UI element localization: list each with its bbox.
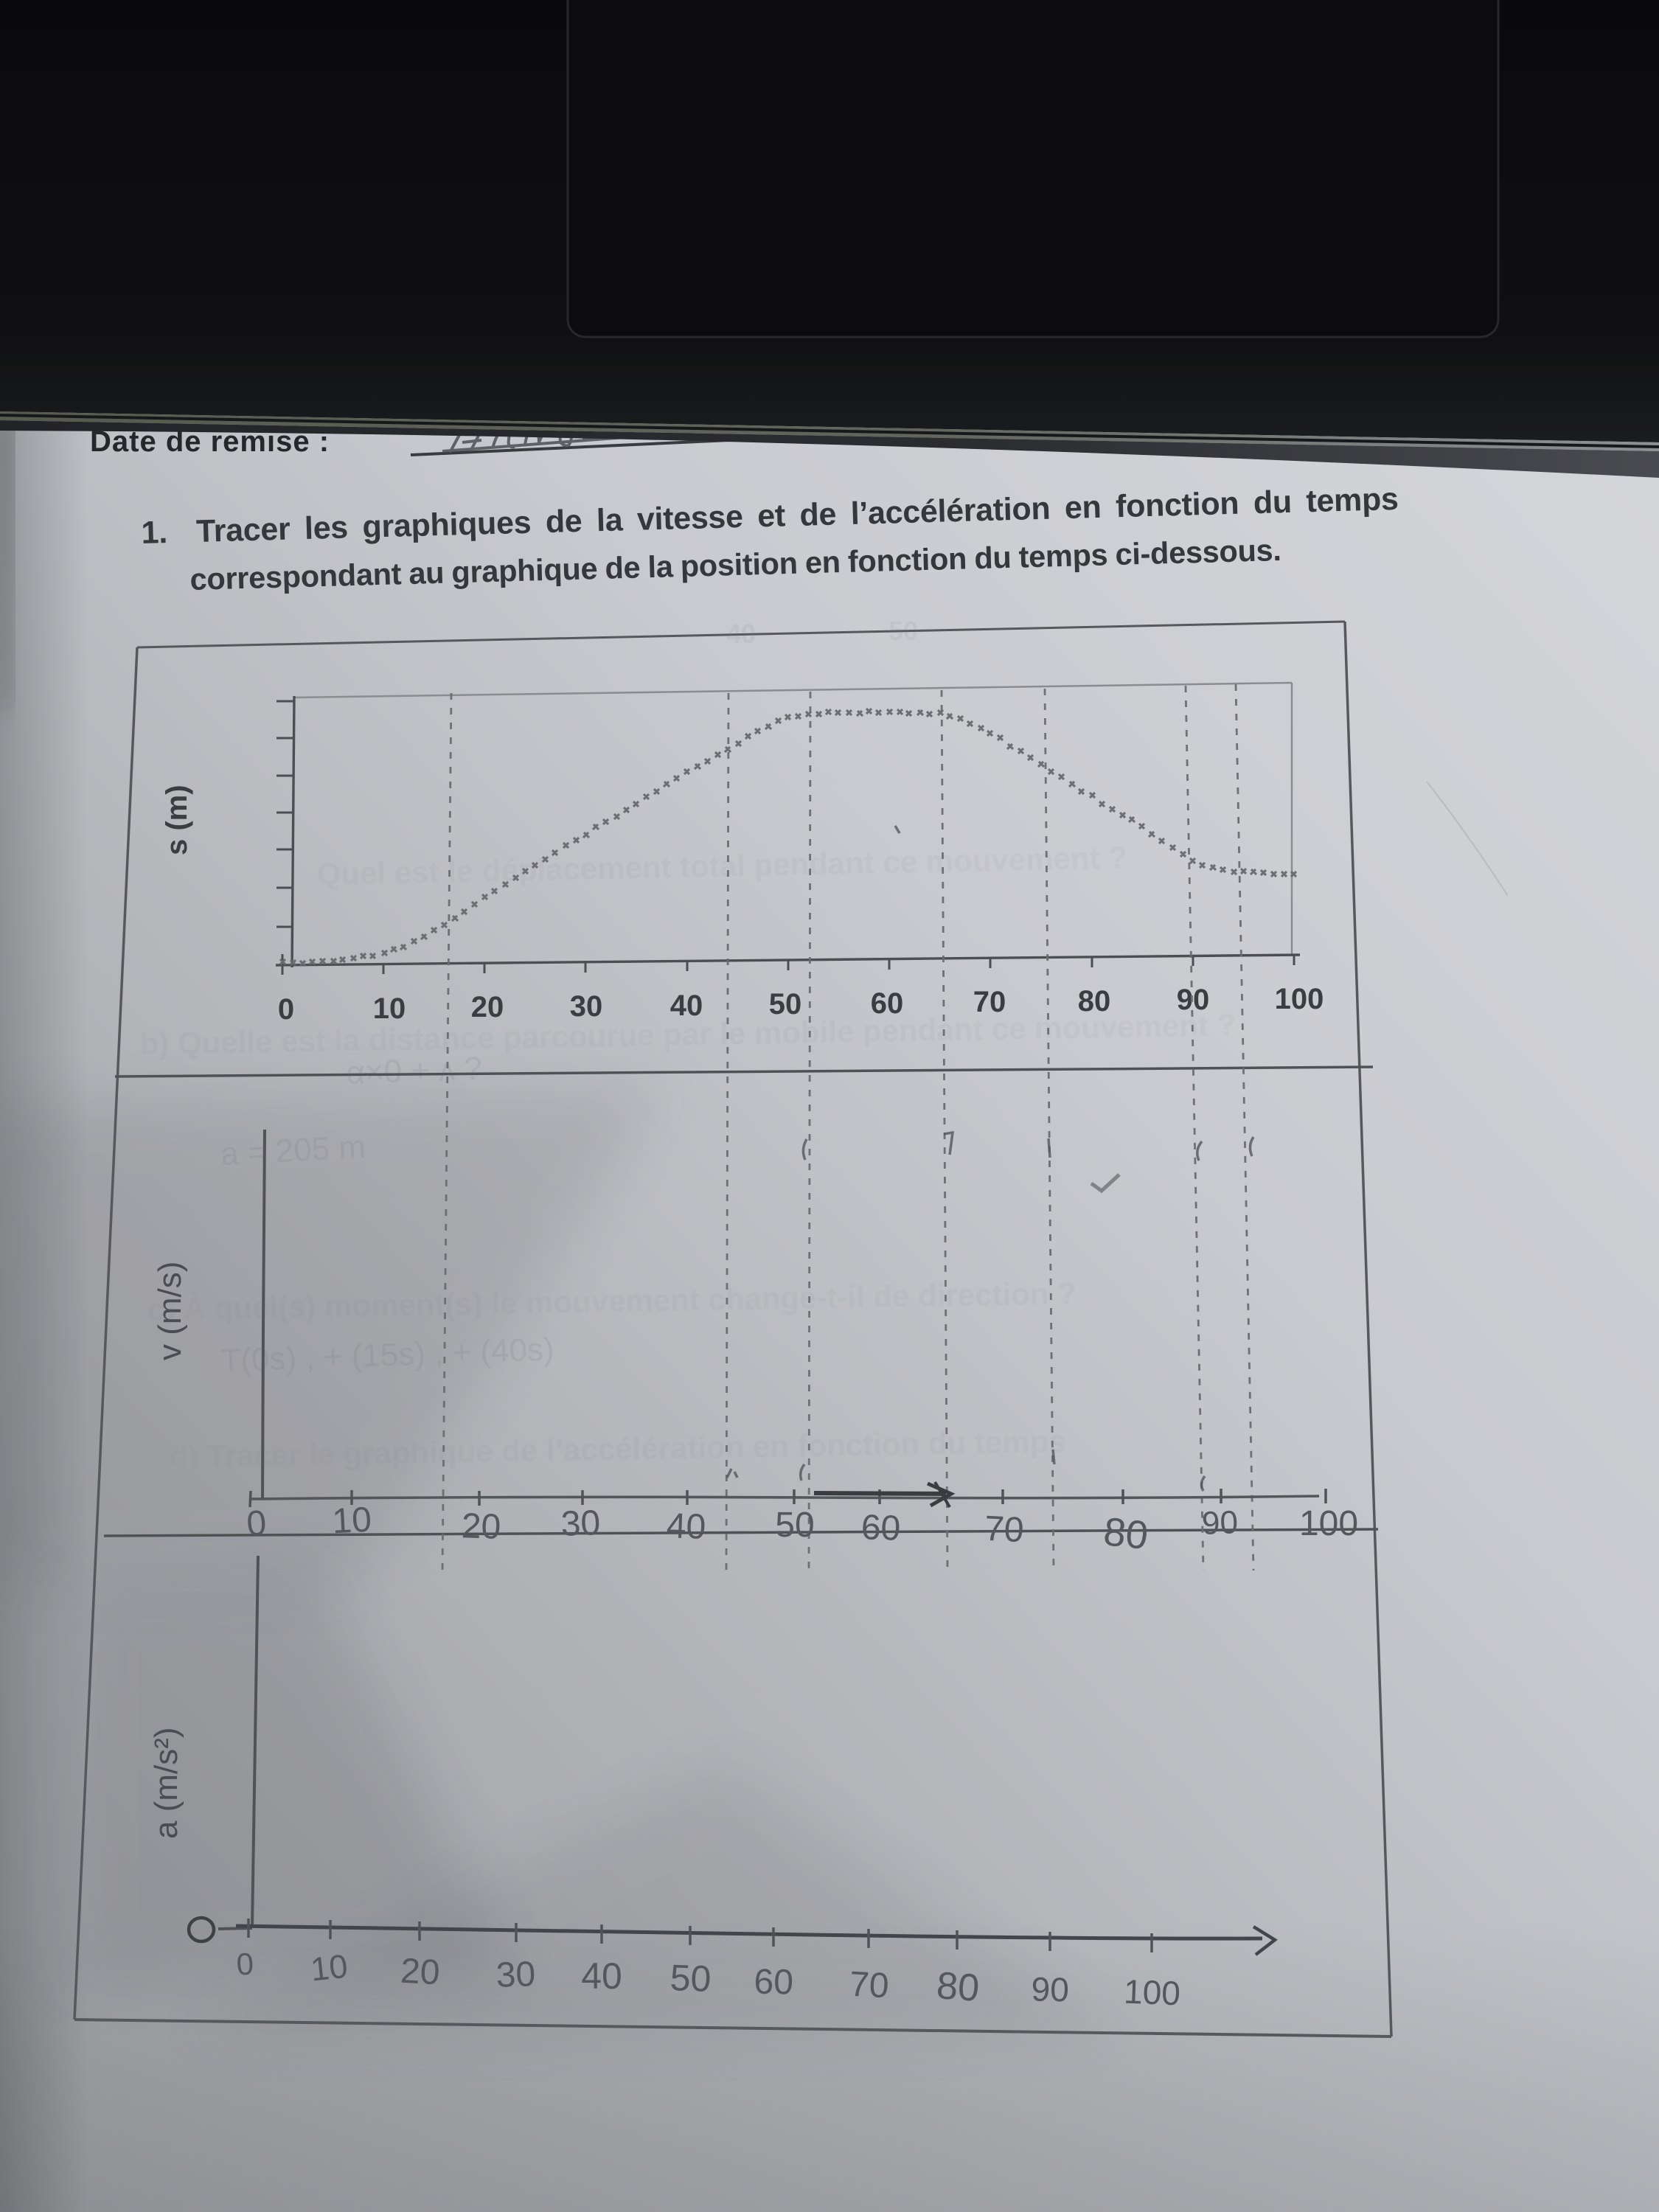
svg-text:50: 50 xyxy=(775,1506,814,1545)
svg-text:80: 80 xyxy=(1102,1509,1150,1558)
svg-text:60: 60 xyxy=(754,1963,793,2003)
svg-text:60: 60 xyxy=(860,1508,901,1548)
svg-text:10: 10 xyxy=(373,992,406,1025)
svg-text:s (m): s (m) xyxy=(161,785,193,855)
svg-text:50: 50 xyxy=(888,616,918,646)
svg-text:30: 30 xyxy=(495,1955,536,1995)
svg-text:30: 30 xyxy=(560,1503,601,1544)
svg-text:0: 0 xyxy=(235,1946,254,1981)
svg-text:100: 100 xyxy=(1123,1972,1181,2013)
svg-text:20: 20 xyxy=(471,991,504,1023)
svg-text:0: 0 xyxy=(278,993,294,1026)
svg-text:10: 10 xyxy=(331,1500,372,1542)
svg-text:20: 20 xyxy=(461,1506,501,1547)
svg-text:0: 0 xyxy=(246,1503,268,1544)
svg-text:70: 70 xyxy=(984,1509,1025,1551)
svg-text:90: 90 xyxy=(1031,1970,1069,2009)
svg-text:40: 40 xyxy=(666,1506,706,1547)
svg-text:70: 70 xyxy=(849,1965,890,2006)
svg-text:10: 10 xyxy=(309,1947,349,1989)
svg-text:40: 40 xyxy=(581,1955,622,1997)
svg-text:40: 40 xyxy=(726,619,756,649)
svg-text:100: 100 xyxy=(1275,983,1324,1015)
svg-text:100: 100 xyxy=(1299,1504,1358,1543)
svg-text:α×0 + ʌ ?: α×0 + ʌ ? xyxy=(346,1051,483,1091)
svg-text:90: 90 xyxy=(1201,1504,1239,1542)
svg-text:50: 50 xyxy=(669,1957,712,2000)
svg-text:a (m/s²): a (m/s²) xyxy=(148,1727,184,1839)
svg-text:a = 205 m: a = 205 m xyxy=(220,1129,366,1172)
svg-text:20: 20 xyxy=(400,1952,441,1993)
svg-text:80: 80 xyxy=(935,1964,981,2010)
